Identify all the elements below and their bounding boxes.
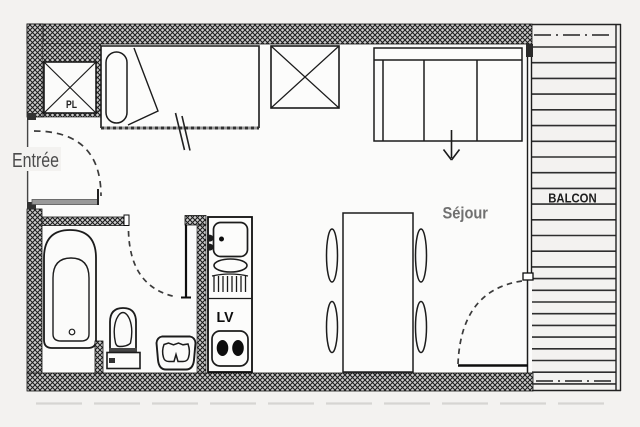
svg-text:PL: PL	[66, 99, 77, 111]
svg-text:Entrée: Entrée	[12, 150, 59, 172]
svg-text:LV: LV	[217, 310, 234, 326]
svg-text:BALCON: BALCON	[548, 191, 597, 206]
svg-text:Séjour: Séjour	[443, 204, 489, 223]
